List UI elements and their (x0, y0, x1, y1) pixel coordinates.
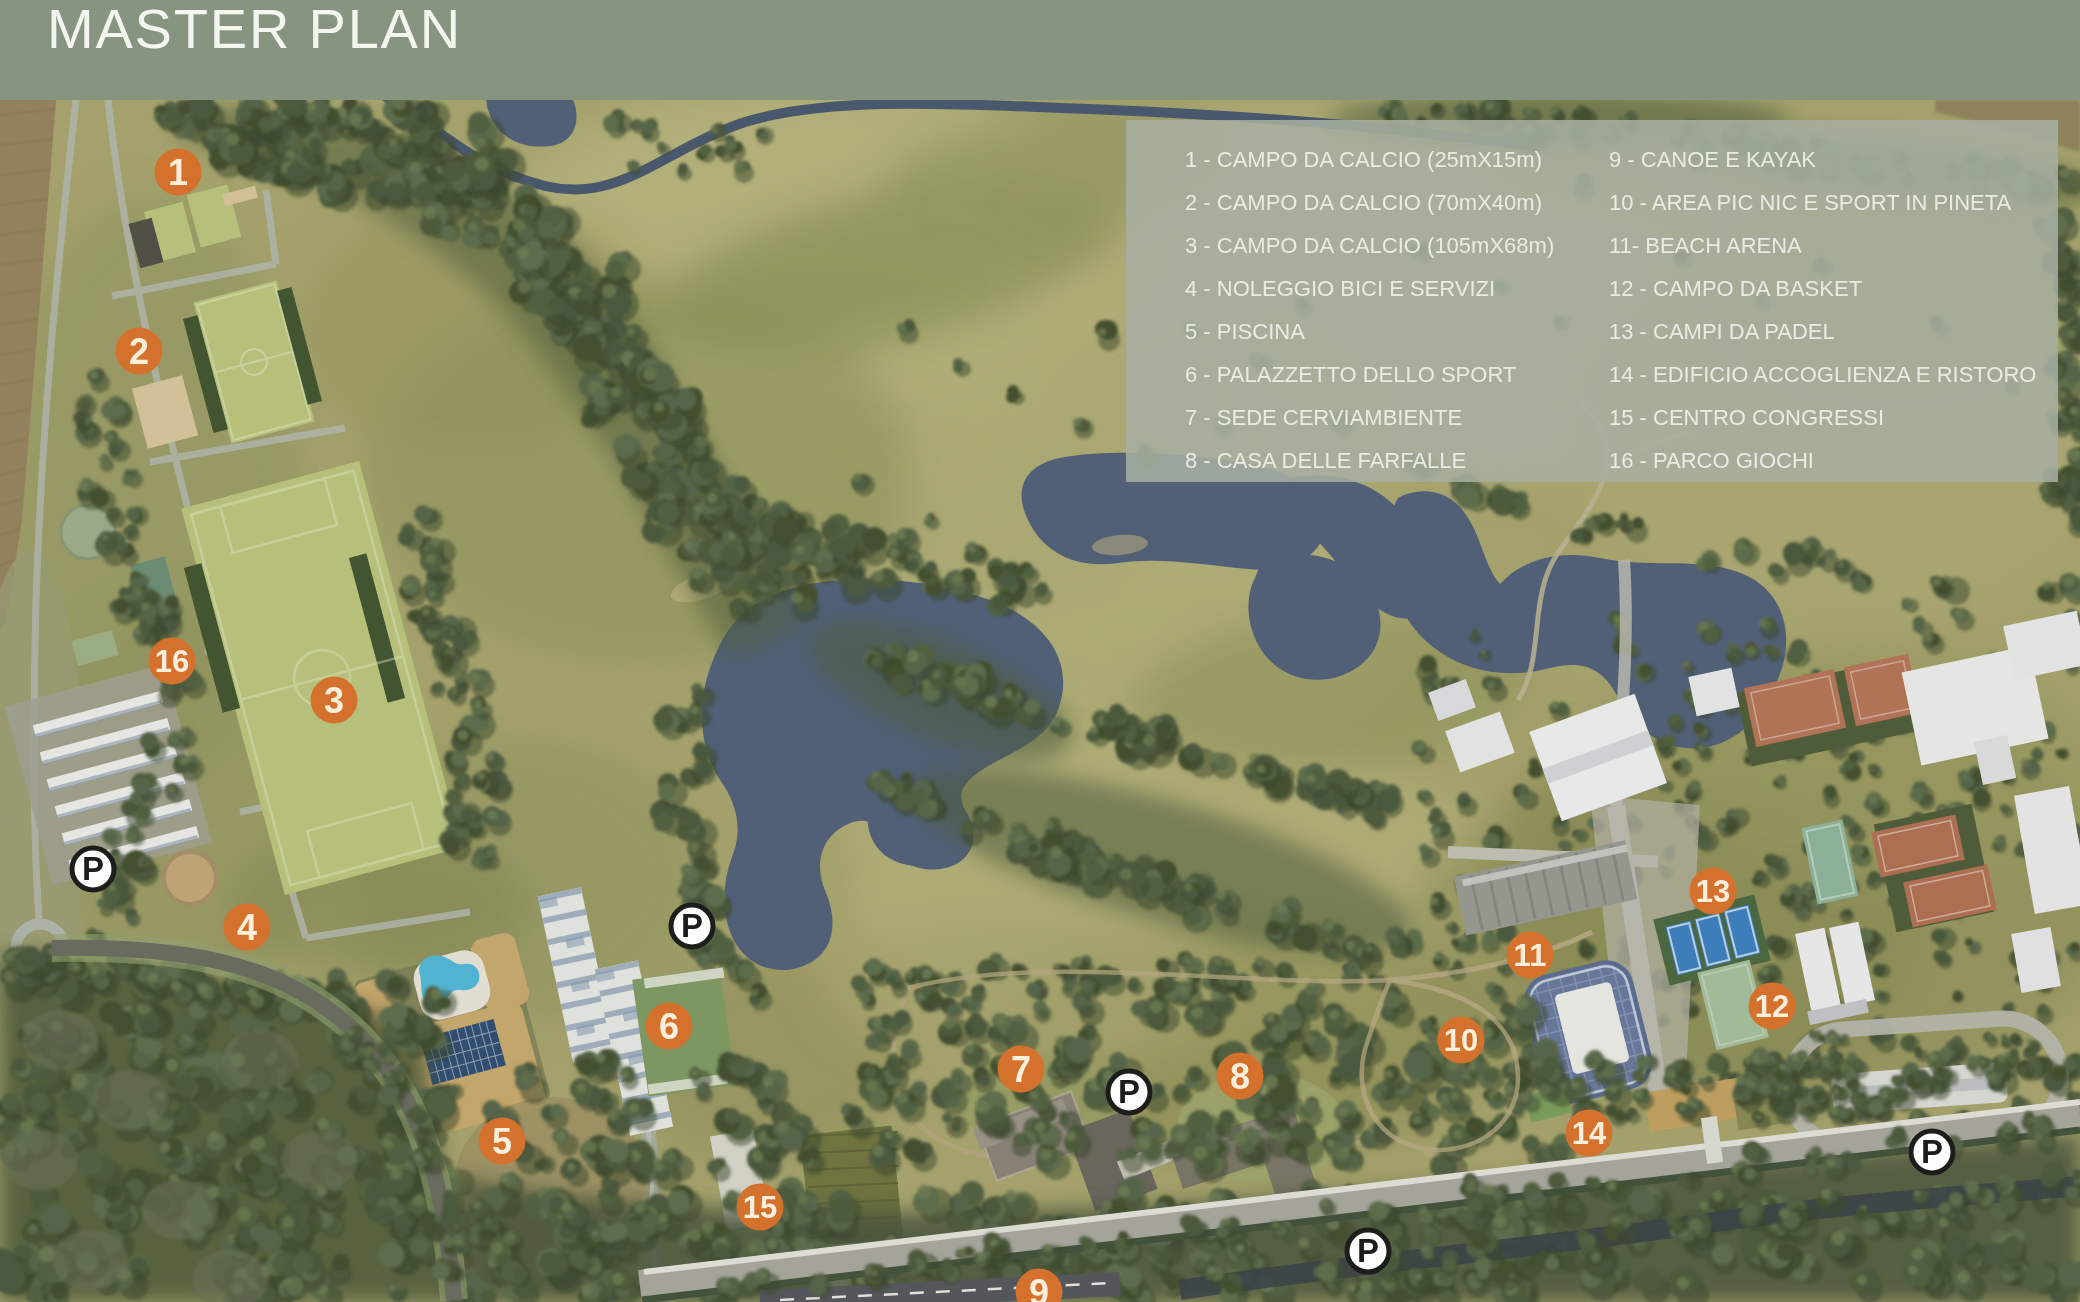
svg-text:2: 2 (129, 331, 149, 372)
svg-text:P: P (1921, 1133, 1943, 1170)
svg-text:12: 12 (1755, 989, 1789, 1024)
svg-text:14 - EDIFICIO ACCOGLIENZA E RI: 14 - EDIFICIO ACCOGLIENZA E RISTORO (1609, 362, 2036, 387)
svg-text:12 - CAMPO DA BASKET: 12 - CAMPO DA BASKET (1609, 276, 1862, 301)
svg-text:4 - NOLEGGIO BICI E SERVIZI: 4 - NOLEGGIO BICI E SERVIZI (1185, 276, 1495, 301)
svg-text:P: P (1357, 1232, 1379, 1269)
svg-text:15: 15 (743, 1190, 777, 1225)
svg-text:6: 6 (659, 1006, 679, 1047)
svg-text:1 - CAMPO DA CALCIO (25mX15m): 1 - CAMPO DA CALCIO (25mX15m) (1185, 147, 1542, 172)
svg-text:5: 5 (492, 1121, 512, 1162)
svg-text:16: 16 (155, 644, 189, 679)
svg-text:10 - AREA PIC NIC E SPORT IN P: 10 - AREA PIC NIC E SPORT IN PINETA (1609, 190, 2012, 215)
svg-text:3: 3 (324, 680, 344, 721)
svg-text:14: 14 (1572, 1116, 1607, 1151)
svg-text:11: 11 (1514, 938, 1547, 973)
svg-text:13: 13 (1696, 874, 1730, 909)
svg-text:16 - PARCO GIOCHI: 16 - PARCO GIOCHI (1609, 448, 1814, 473)
svg-text:13 - CAMPI DA PADEL: 13 - CAMPI DA PADEL (1609, 319, 1835, 344)
svg-text:6 - PALAZZETTO DELLO SPORT: 6 - PALAZZETTO DELLO SPORT (1185, 362, 1516, 387)
svg-text:8 - CASA DELLE FARFALLE: 8 - CASA DELLE FARFALLE (1185, 448, 1466, 473)
svg-text:5 - PISCINA: 5 - PISCINA (1185, 319, 1305, 344)
svg-text:P: P (681, 907, 703, 944)
svg-text:8: 8 (1230, 1056, 1250, 1097)
svg-text:9 - CANOE E KAYAK: 9 - CANOE E KAYAK (1609, 147, 1816, 172)
svg-text:MASTER PLAN: MASTER PLAN (47, 0, 462, 60)
svg-text:4: 4 (237, 907, 257, 948)
svg-text:11- BEACH ARENA: 11- BEACH ARENA (1609, 233, 1802, 258)
svg-text:P: P (82, 850, 104, 887)
svg-text:15 - CENTRO CONGRESSI: 15 - CENTRO CONGRESSI (1609, 405, 1884, 430)
svg-text:3 - CAMPO DA CALCIO (105mX68m): 3 - CAMPO DA CALCIO (105mX68m) (1185, 233, 1554, 258)
svg-text:2 - CAMPO DA CALCIO (70mX40m): 2 - CAMPO DA CALCIO (70mX40m) (1185, 190, 1542, 215)
svg-text:9: 9 (1029, 1272, 1049, 1302)
svg-text:7 - SEDE CERVIAMBIENTE: 7 - SEDE CERVIAMBIENTE (1185, 405, 1462, 430)
svg-text:1: 1 (168, 152, 188, 193)
svg-text:7: 7 (1011, 1049, 1031, 1090)
svg-text:10: 10 (1444, 1023, 1478, 1058)
svg-text:P: P (1118, 1073, 1140, 1110)
